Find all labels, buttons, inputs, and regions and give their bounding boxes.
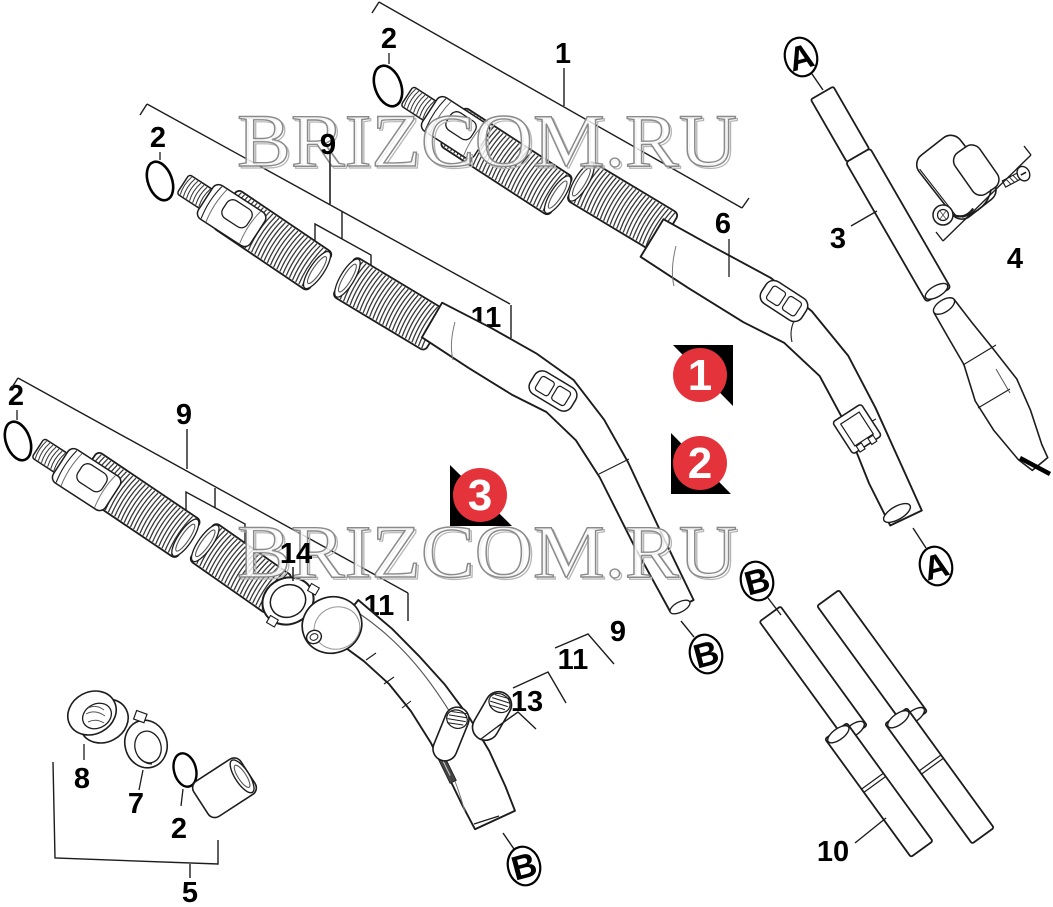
svg-text:6: 6 xyxy=(715,208,731,240)
svg-text:8: 8 xyxy=(74,763,90,795)
svg-text:7: 7 xyxy=(128,788,144,820)
svg-text:10: 10 xyxy=(817,836,849,868)
svg-text:13: 13 xyxy=(511,686,543,718)
svg-text:1: 1 xyxy=(688,351,712,400)
svg-text:5: 5 xyxy=(182,877,198,907)
svg-text:2: 2 xyxy=(171,813,187,845)
svg-text:11: 11 xyxy=(558,644,589,676)
svg-text:9: 9 xyxy=(320,129,336,161)
svg-text:BRIZCOM.RU: BRIZCOM.RU xyxy=(237,100,737,183)
svg-text:2: 2 xyxy=(8,380,24,412)
svg-text:3: 3 xyxy=(830,223,846,255)
svg-text:9: 9 xyxy=(610,616,626,648)
svg-text:2: 2 xyxy=(688,439,712,488)
svg-text:9: 9 xyxy=(176,399,192,431)
svg-text:1: 1 xyxy=(555,38,571,70)
svg-text:4: 4 xyxy=(1007,243,1023,275)
svg-text:14: 14 xyxy=(280,538,312,570)
svg-text:2: 2 xyxy=(381,23,397,55)
svg-text:2: 2 xyxy=(150,122,166,154)
